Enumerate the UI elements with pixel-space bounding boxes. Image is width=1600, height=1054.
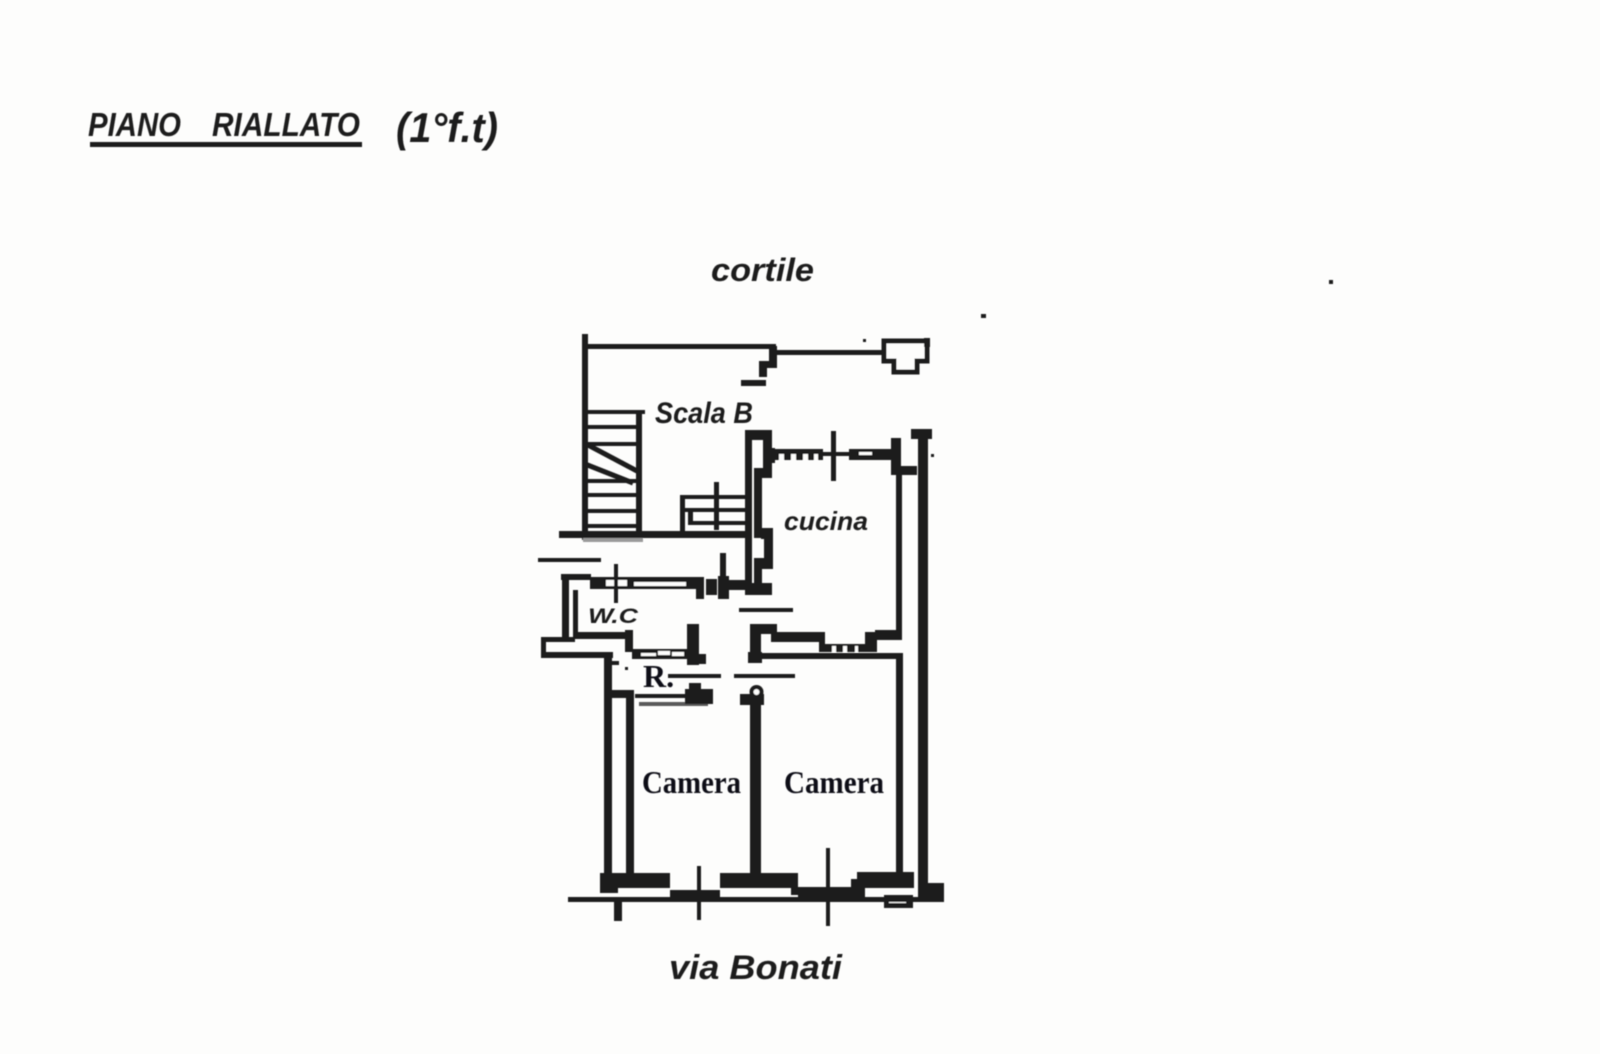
svg-text:(1°f.t): (1°f.t): [396, 104, 498, 151]
svg-text:RIALLATO: RIALLATO: [212, 106, 360, 143]
svg-text:cortile: cortile: [711, 252, 814, 288]
svg-text:Camera: Camera: [642, 764, 741, 800]
svg-text:PIANO: PIANO: [88, 106, 181, 143]
svg-text:Scala B: Scala B: [655, 397, 753, 430]
svg-text:Camera: Camera: [784, 764, 884, 800]
svg-text:W.C: W.C: [588, 605, 639, 628]
svg-text:via Bonati: via Bonati: [669, 949, 844, 987]
svg-text:cucina: cucina: [784, 506, 868, 536]
